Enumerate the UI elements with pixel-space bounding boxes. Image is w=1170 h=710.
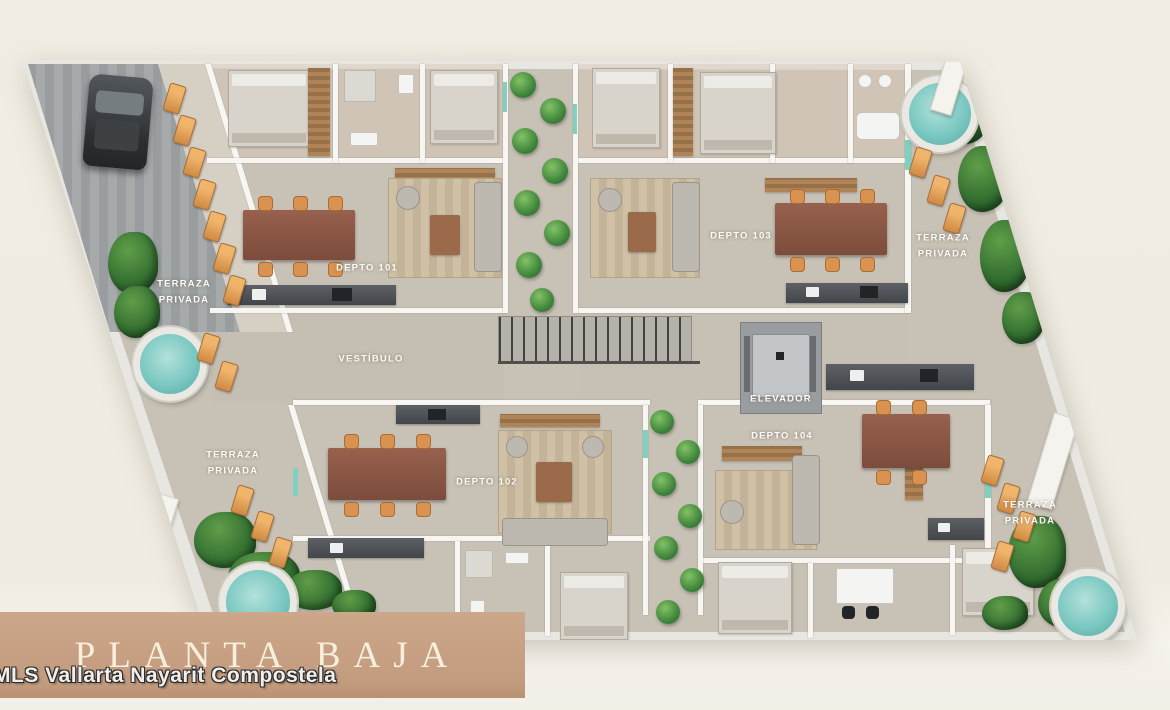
wall bbox=[420, 64, 425, 163]
chair bbox=[825, 189, 840, 204]
coffee-table bbox=[430, 215, 460, 255]
car-windshield bbox=[95, 90, 145, 116]
tree bbox=[510, 72, 536, 98]
tree bbox=[656, 600, 680, 624]
tree bbox=[514, 190, 540, 216]
sofa bbox=[474, 182, 502, 272]
tree bbox=[680, 568, 704, 592]
stove bbox=[428, 409, 446, 420]
kitchen-counter bbox=[308, 538, 424, 558]
sink-basin bbox=[858, 74, 872, 88]
window-sill bbox=[573, 104, 577, 134]
chair bbox=[416, 434, 431, 449]
wall bbox=[545, 541, 550, 636]
bed bbox=[430, 70, 498, 144]
shrub bbox=[982, 596, 1028, 630]
kitchen-sink bbox=[252, 289, 266, 300]
wall bbox=[207, 158, 507, 163]
kitchen-counter bbox=[826, 364, 974, 390]
wall bbox=[573, 64, 578, 313]
wall bbox=[578, 308, 910, 313]
tree bbox=[654, 536, 678, 560]
stove bbox=[332, 288, 352, 301]
dining-table bbox=[775, 203, 887, 255]
tree bbox=[542, 158, 568, 184]
kitchen-counter bbox=[928, 518, 984, 540]
dining-table bbox=[328, 448, 446, 500]
shrub bbox=[1002, 292, 1044, 344]
wall bbox=[210, 308, 507, 313]
shrub bbox=[958, 146, 1008, 212]
bed bbox=[718, 562, 792, 634]
armchair bbox=[720, 500, 744, 524]
bed bbox=[560, 572, 628, 640]
chair bbox=[258, 262, 273, 277]
toilet bbox=[398, 74, 414, 94]
wall bbox=[950, 545, 955, 635]
elevator-label: ELEVADOR bbox=[750, 394, 812, 405]
sink-basin bbox=[505, 552, 529, 564]
terrace-label-upper-right: TERRAZA PRIVADA bbox=[909, 230, 977, 261]
chair bbox=[380, 434, 395, 449]
sink-basin bbox=[878, 74, 892, 88]
bed bbox=[592, 68, 660, 148]
bathtub bbox=[856, 112, 900, 140]
kitchen-counter bbox=[786, 283, 908, 303]
tree bbox=[652, 472, 676, 496]
tree bbox=[650, 410, 674, 434]
chair bbox=[293, 196, 308, 211]
kitchen-sink bbox=[806, 287, 819, 297]
chair bbox=[416, 502, 431, 517]
shrub bbox=[980, 220, 1030, 292]
tree bbox=[512, 128, 538, 154]
plunge-pool bbox=[1051, 569, 1125, 643]
window-sill bbox=[293, 468, 298, 496]
elevator-motor bbox=[776, 352, 784, 360]
elevator-rail bbox=[810, 336, 816, 392]
floor-plan-rendering: DEPTO 101 DEPTO 102 DEPTO 103 DEPTO 104 … bbox=[0, 0, 1170, 710]
tree bbox=[544, 220, 570, 246]
stove bbox=[920, 369, 938, 382]
unit-label-depto-104: DEPTO 104 bbox=[751, 431, 813, 442]
plunge-pool bbox=[133, 327, 207, 401]
building-outline: DEPTO 101 DEPTO 102 DEPTO 103 DEPTO 104 … bbox=[0, 0, 1170, 710]
chair bbox=[344, 502, 359, 517]
pergola bbox=[135, 492, 179, 563]
desk bbox=[836, 568, 894, 604]
chair bbox=[790, 189, 805, 204]
unit-label-depto-101: DEPTO 101 bbox=[336, 263, 398, 274]
bed bbox=[700, 72, 776, 154]
tree bbox=[676, 440, 700, 464]
armchair bbox=[396, 186, 420, 210]
stair-railing bbox=[498, 361, 700, 364]
shower bbox=[344, 70, 376, 102]
chair bbox=[790, 257, 805, 272]
chair bbox=[825, 257, 840, 272]
elevator-rail bbox=[744, 336, 750, 392]
credenza bbox=[722, 446, 802, 461]
closet bbox=[308, 68, 330, 156]
office-chair bbox=[842, 606, 855, 619]
wall bbox=[848, 64, 853, 163]
terrace-label-lower-left: TERRAZA PRIVADA bbox=[199, 447, 267, 478]
chair bbox=[293, 262, 308, 277]
terrace-label-upper-left: TERRAZA PRIVADA bbox=[150, 276, 218, 307]
wall bbox=[808, 563, 813, 638]
chair bbox=[912, 470, 927, 485]
kitchen-sink bbox=[850, 370, 864, 381]
building-shadow: DEPTO 101 DEPTO 102 DEPTO 103 DEPTO 104 … bbox=[0, 0, 1170, 710]
armchair bbox=[582, 436, 604, 458]
dining-table bbox=[243, 210, 355, 260]
chair bbox=[328, 196, 343, 211]
chair bbox=[258, 196, 273, 211]
chair bbox=[876, 400, 891, 415]
shower bbox=[465, 550, 493, 578]
sink-basin bbox=[350, 132, 378, 146]
bed bbox=[228, 70, 310, 147]
chair bbox=[380, 502, 395, 517]
sofa bbox=[792, 455, 820, 545]
armchair bbox=[506, 436, 528, 458]
wall bbox=[333, 64, 338, 163]
unit-label-depto-102: DEPTO 102 bbox=[456, 477, 518, 488]
staircase bbox=[498, 316, 692, 362]
terrace-label-lower-right: TERRAZA PRIVADA bbox=[996, 497, 1064, 528]
tree bbox=[516, 252, 542, 278]
closet bbox=[673, 68, 693, 156]
chair bbox=[912, 400, 927, 415]
kitchen-sink bbox=[330, 543, 343, 553]
vestibule-label: VESTÍBULO bbox=[338, 354, 403, 365]
car-roof bbox=[94, 118, 140, 152]
tv-console bbox=[500, 414, 600, 427]
coffee-table bbox=[628, 212, 656, 252]
unit-label-depto-103: DEPTO 103 bbox=[710, 231, 772, 242]
chair bbox=[860, 189, 875, 204]
window-sill bbox=[643, 430, 648, 458]
car bbox=[82, 73, 154, 170]
sofa bbox=[502, 518, 608, 546]
watermark: MLS Vallarta Nayarit Compostela bbox=[0, 664, 336, 688]
chair bbox=[860, 257, 875, 272]
chair bbox=[344, 434, 359, 449]
coffee-table bbox=[536, 462, 572, 502]
kitchen-sink bbox=[938, 523, 950, 532]
armchair bbox=[598, 188, 622, 212]
tree bbox=[678, 504, 702, 528]
chair bbox=[876, 470, 891, 485]
window-sill bbox=[503, 82, 507, 112]
stove bbox=[860, 286, 878, 298]
sofa bbox=[672, 182, 700, 272]
elevator-cab bbox=[752, 334, 810, 398]
office-chair bbox=[866, 606, 879, 619]
dining-table bbox=[862, 414, 950, 468]
tree bbox=[530, 288, 554, 312]
wall bbox=[578, 158, 910, 163]
tree bbox=[540, 98, 566, 124]
credenza bbox=[765, 178, 857, 192]
